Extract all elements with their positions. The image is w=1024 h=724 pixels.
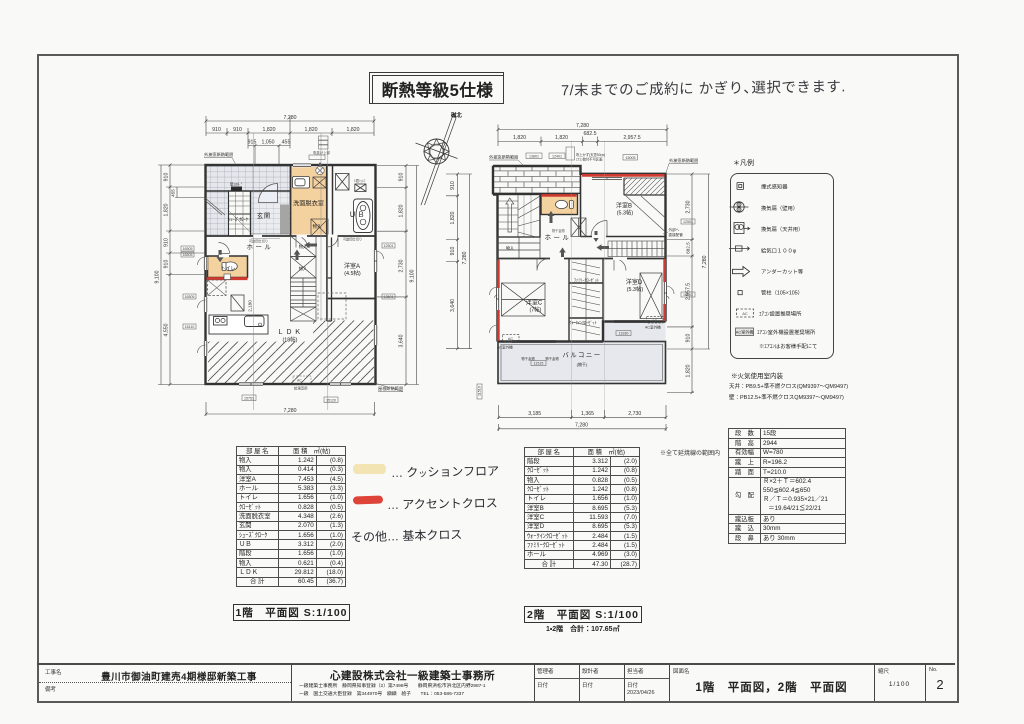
svg-text:2,957.5: 2,957.5 — [686, 283, 692, 300]
svg-text:可動間仕切り: 可動間仕切り — [249, 239, 268, 244]
svg-text:455: 455 — [171, 189, 176, 197]
svg-text:910: 910 — [686, 334, 692, 343]
svg-text:(5.3帖): (5.3帖) — [617, 209, 634, 217]
svg-text:磁北: 磁北 — [451, 111, 462, 119]
svg-text:11930: 11930 — [619, 332, 629, 336]
svg-text:910: 910 — [233, 127, 242, 133]
svg-text:910: 910 — [164, 173, 170, 182]
svg-text:洋室C: 洋室C — [526, 299, 543, 307]
svg-text:910: 910 — [164, 260, 170, 269]
svg-text:1,050: 1,050 — [262, 140, 275, 146]
svg-text:9,100: 9,100 — [410, 269, 416, 282]
svg-text:洋室B: 洋室B — [616, 202, 632, 210]
svg-text:7,280: 7,280 — [576, 123, 589, 129]
svg-text:AC: AC — [652, 319, 658, 323]
svg-text:12501: 12501 — [683, 220, 693, 224]
svg-text:1,365: 1,365 — [581, 411, 594, 417]
svg-text:(18帖): (18帖) — [283, 336, 298, 344]
svg-text:吹抜け上部: 吹抜け上部 — [313, 150, 331, 155]
svg-text:4,550: 4,550 — [164, 323, 170, 336]
svg-text:トイレ: トイレ — [220, 266, 235, 272]
svg-text:ホール: ホール — [247, 243, 274, 251]
svg-text:16505: 16505 — [183, 247, 193, 251]
svg-text:16505: 16505 — [183, 253, 193, 257]
svg-text:物干金物: 物干金物 — [545, 356, 559, 361]
svg-text:外部へ: 外部へ — [669, 227, 680, 232]
svg-text:吹上かず(天窓50㎝): 吹上かず(天窓50㎝) — [576, 152, 605, 157]
svg-text:壁166･°: 壁166･° — [230, 182, 243, 187]
svg-text:16505: 16505 — [185, 295, 195, 299]
svg-text:910: 910 — [399, 173, 405, 182]
svg-text:2,957.5: 2,957.5 — [623, 135, 640, 141]
svg-text:洗面脱衣室: 洗面脱衣室 — [293, 200, 324, 208]
svg-text:外接窓断熱範囲: 外接窓断熱範囲 — [204, 151, 233, 158]
svg-text:2,730: 2,730 — [399, 259, 405, 272]
svg-text:910: 910 — [212, 127, 221, 133]
svg-text:7,280: 7,280 — [284, 408, 297, 414]
svg-text:AC: AC — [508, 337, 514, 341]
svg-text:玄関: 玄関 — [257, 212, 271, 220]
svg-text:物入: 物入 — [313, 223, 322, 230]
svg-text:15751: 15751 — [244, 397, 254, 401]
svg-text:(4.5帖): (4.5帖) — [344, 269, 361, 277]
svg-text:2,730: 2,730 — [686, 200, 692, 213]
svg-text:682.5: 682.5 — [584, 131, 597, 137]
svg-text:3,185: 3,185 — [528, 411, 541, 417]
svg-text:屋根断熱範囲: 屋根断熱範囲 — [378, 385, 403, 392]
svg-text:1,820: 1,820 — [305, 127, 318, 133]
svg-text:12501: 12501 — [384, 244, 394, 248]
svg-text:11510: 11510 — [478, 386, 482, 396]
svg-text:物干金物: 物干金物 — [552, 228, 566, 233]
svg-text:直接配管: 直接配管 — [669, 232, 684, 237]
svg-text:1,820: 1,820 — [450, 211, 456, 224]
svg-text:洋室A: 洋室A — [344, 262, 360, 270]
svg-text:1,820: 1,820 — [164, 203, 170, 216]
svg-text:(物干): (物干) — [577, 361, 588, 367]
svg-text:3,640: 3,640 — [450, 299, 456, 312]
svg-text:ＬＤＫ: ＬＤＫ — [277, 329, 303, 336]
svg-text:15120: 15120 — [326, 399, 336, 403]
svg-text:1,820: 1,820 — [347, 127, 360, 133]
svg-text:1,820: 1,820 — [686, 364, 692, 377]
svg-text:7,280: 7,280 — [702, 255, 708, 268]
svg-text:9,100: 9,100 — [155, 270, 161, 283]
svg-text:915: 915 — [248, 140, 257, 146]
svg-text:1,820: 1,820 — [263, 127, 276, 133]
svg-text:910: 910 — [164, 238, 170, 247]
svg-text:1,820: 1,820 — [513, 135, 526, 141]
svg-text:910: 910 — [450, 247, 456, 256]
svg-text:ｼｭｰｽﾞｸﾛｰｸ: ｼｭｰｽﾞｸﾛｰｸ — [228, 216, 248, 223]
svg-text:可動間仕切り: 可動間仕切り — [343, 237, 362, 242]
svg-text:13501: 13501 — [683, 293, 693, 297]
svg-text:2,180: 2,180 — [248, 300, 253, 312]
svg-text:12401: 12401 — [552, 155, 562, 159]
svg-text:11515: 11515 — [534, 362, 544, 366]
svg-text:2,730: 2,730 — [628, 411, 641, 417]
svg-text:AC室外機: AC室外機 — [645, 325, 661, 330]
svg-text:洋室D: 洋室D — [626, 278, 643, 286]
svg-text:16110: 16110 — [185, 325, 195, 329]
svg-text:1,820: 1,820 — [399, 204, 405, 217]
svg-text:ＵＢ: ＵＢ — [349, 211, 366, 219]
svg-text:(5.3帖): (5.3帖) — [627, 285, 644, 293]
svg-text:給湯専用: 給湯専用 — [294, 386, 308, 391]
svg-text:AC室外機: AC室外機 — [497, 345, 513, 350]
svg-text:682.5: 682.5 — [686, 242, 691, 254]
svg-text:7,280: 7,280 — [462, 251, 468, 264]
svg-text:3,640: 3,640 — [399, 334, 405, 347]
svg-text:13801: 13801 — [529, 155, 539, 159]
svg-text:910: 910 — [450, 181, 456, 190]
svg-text:外接窓断熱範囲: 外接窓断熱範囲 — [489, 154, 518, 161]
svg-text:ｳｫｰｸｲﾝｸﾛｰｾﾞｯﾄ: ｳｫｰｸｲﾝｸﾛｰｾﾞｯﾄ — [569, 320, 596, 325]
svg-text:7,280: 7,280 — [284, 115, 297, 121]
svg-text:ｴｱｺﾝ取付不可区画: ｴｱｺﾝ取付不可区画 — [576, 157, 603, 162]
svg-text:1,820: 1,820 — [555, 135, 568, 141]
svg-text:バルコニー: バルコニー — [562, 351, 601, 359]
svg-text:物入: 物入 — [506, 245, 514, 251]
svg-text:1間ｼｪﾙﾌ: 1間ｼｪﾙﾌ — [354, 178, 366, 183]
svg-text:外接窓断熱範囲: 外接窓断熱範囲 — [669, 157, 698, 164]
svg-text:15005: 15005 — [626, 156, 636, 160]
svg-text:7,280: 7,280 — [575, 423, 588, 429]
svg-text:455: 455 — [282, 140, 291, 146]
svg-text:AC: AC — [297, 379, 302, 383]
svg-text:(7帖): (7帖) — [530, 306, 542, 314]
svg-text:ホール: ホール — [545, 234, 572, 242]
svg-text:物入: 物入 — [299, 265, 308, 272]
